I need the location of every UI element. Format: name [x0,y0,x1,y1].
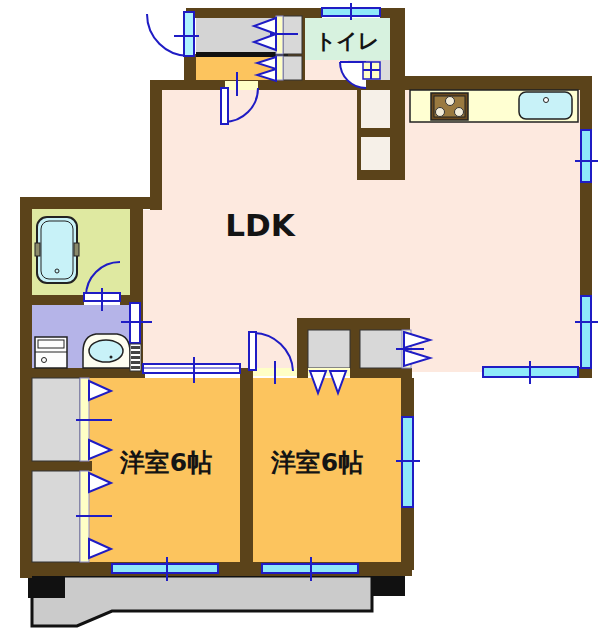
bedroom-left-closet-top [32,378,80,461]
ldk-label: LDK [225,207,295,243]
entrance-door-leaf [184,12,194,56]
stove-burner [436,108,445,117]
bedroom-left-closet-bottom [32,471,80,562]
bedroom-left-window [112,564,218,573]
bedroom-right-label: 洋室6帖 [270,448,363,477]
bedroom-right-door-leaf [249,332,256,370]
shelf-stripe [131,366,140,369]
stove-burner [446,97,455,106]
fridge-space-bottom [361,137,390,170]
fridge-space-top [361,90,390,128]
ldk-side-window [581,296,591,368]
floor-plan: LDK トイレ 洋室6帖 洋室6帖 [0,0,604,640]
shelf-stripe [131,351,140,354]
kitchen-sink [519,92,572,119]
washbasin [89,340,123,362]
shelf-stripe [131,361,140,364]
ldk-door-leaf [221,88,228,124]
bedroom-right-closet [308,330,350,368]
sink-faucet [544,98,549,103]
kitchen-side-window [581,130,591,182]
toilet-label: トイレ [315,29,379,53]
entry-closet-strip-bottom [276,56,283,80]
kitchen [410,90,578,122]
ldk-door-opening [225,81,258,90]
shelf-stripe [131,346,140,349]
entrance-step-line [196,52,288,57]
washbasin-drain [110,356,113,359]
floor-plan-drawing: LDK トイレ 洋室6帖 洋室6帖 [0,0,604,640]
balcony-floor [32,576,372,626]
entrance-closet-bottom [283,56,302,80]
bedroom-left-label: 洋室6帖 [119,448,212,477]
bathtub-handle [74,243,79,256]
stove-burner [455,108,464,117]
shelf-stripe [131,356,140,359]
bathtub-handle [35,243,40,256]
